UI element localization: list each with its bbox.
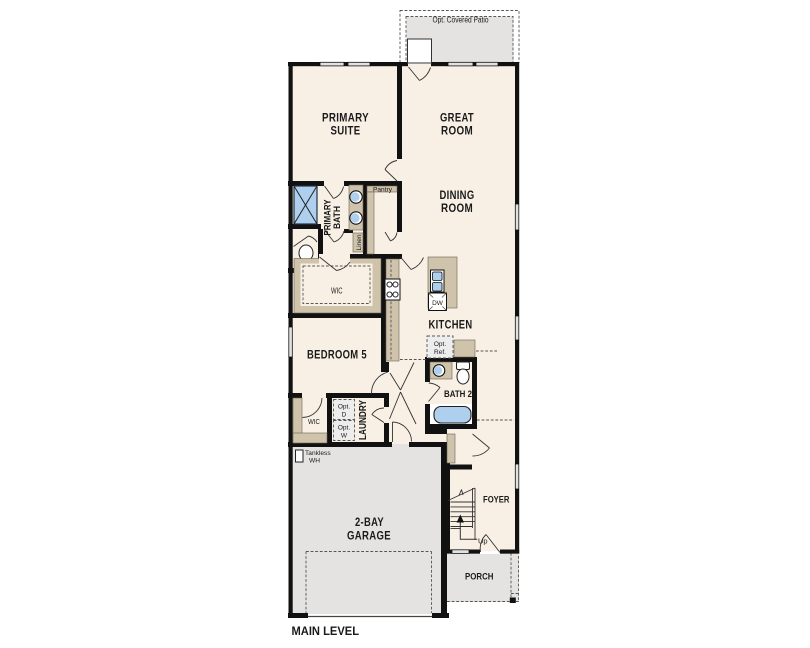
svg-text:Linen: Linen [356, 234, 363, 251]
svg-text:PRIMARY: PRIMARY [323, 199, 333, 235]
svg-text:Ref.: Ref. [434, 349, 446, 356]
svg-text:Opt.: Opt. [338, 404, 350, 411]
svg-text:DINING: DINING [440, 190, 475, 202]
svg-text:FOYER: FOYER [483, 494, 510, 504]
svg-text:BEDROOM 5: BEDROOM 5 [307, 350, 367, 362]
svg-text:Pantry: Pantry [373, 187, 393, 194]
svg-text:WH: WH [309, 458, 320, 465]
svg-text:Up: Up [478, 537, 488, 546]
svg-text:SUITE: SUITE [331, 126, 361, 138]
svg-text:ROOM: ROOM [441, 126, 473, 138]
svg-text:BATH: BATH [332, 206, 342, 229]
svg-text:PORCH: PORCH [465, 571, 494, 581]
svg-text:LAUNDRY: LAUNDRY [358, 400, 369, 440]
svg-text:WIC: WIC [331, 287, 343, 296]
svg-text:D: D [342, 412, 347, 419]
svg-text:Opt.: Opt. [434, 341, 446, 348]
svg-text:2-BAY: 2-BAY [355, 517, 384, 529]
svg-text:Opt.: Opt. [338, 425, 350, 432]
svg-text:KITCHEN: KITCHEN [429, 320, 473, 332]
svg-text:Opt. Covered Patio: Opt. Covered Patio [433, 16, 490, 25]
svg-text:PRIMARY: PRIMARY [322, 113, 369, 125]
svg-text:GREAT: GREAT [440, 113, 474, 125]
svg-text:W: W [341, 433, 348, 440]
svg-text:MAIN LEVEL: MAIN LEVEL [292, 626, 360, 638]
svg-text:Tankless: Tankless [305, 450, 331, 457]
svg-text:ROOM: ROOM [441, 203, 473, 215]
svg-text:DW: DW [432, 300, 444, 307]
svg-text:BATH 2: BATH 2 [444, 389, 472, 400]
svg-text:GARAGE: GARAGE [347, 531, 391, 543]
svg-text:WIC: WIC [308, 417, 320, 426]
